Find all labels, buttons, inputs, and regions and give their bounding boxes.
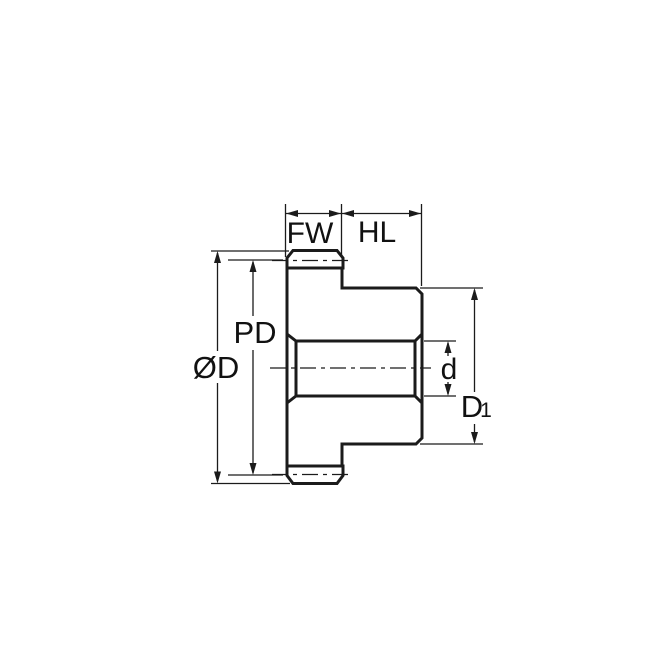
dimension-fw: FW: [286, 204, 342, 257]
gear-body: [287, 251, 422, 484]
arrowhead-down: [471, 432, 478, 444]
centerlines: [270, 261, 431, 475]
gear-tooth-top: [287, 251, 343, 269]
dimension-hl: HL: [342, 204, 422, 286]
dimension-od: ØD: [193, 251, 290, 484]
pd-label: PD: [233, 315, 276, 350]
gear-upper-body-section: [287, 268, 422, 341]
arrowhead-right: [329, 210, 341, 217]
arrowhead-up: [250, 260, 257, 272]
arrowhead-right: [409, 210, 421, 217]
arrowhead-left: [342, 210, 354, 217]
gear-lower-body-section: [287, 396, 422, 466]
od-label: ØD: [193, 350, 240, 385]
arrowhead-down: [250, 463, 257, 475]
arrowhead-up: [214, 251, 221, 263]
drawing-canvas: FW HL ØD PD: [0, 0, 670, 670]
d1-label-subscript: 1: [480, 399, 492, 422]
arrowhead-down: [214, 472, 221, 484]
arrowhead-left: [286, 210, 298, 217]
fw-label: FW: [287, 217, 334, 250]
hl-label: HL: [358, 216, 396, 249]
d-label: d: [441, 353, 458, 386]
arrowhead-up: [471, 288, 478, 300]
arrowhead-up: [445, 341, 452, 353]
gear-cross-section-drawing: FW HL ØD PD: [0, 0, 670, 670]
